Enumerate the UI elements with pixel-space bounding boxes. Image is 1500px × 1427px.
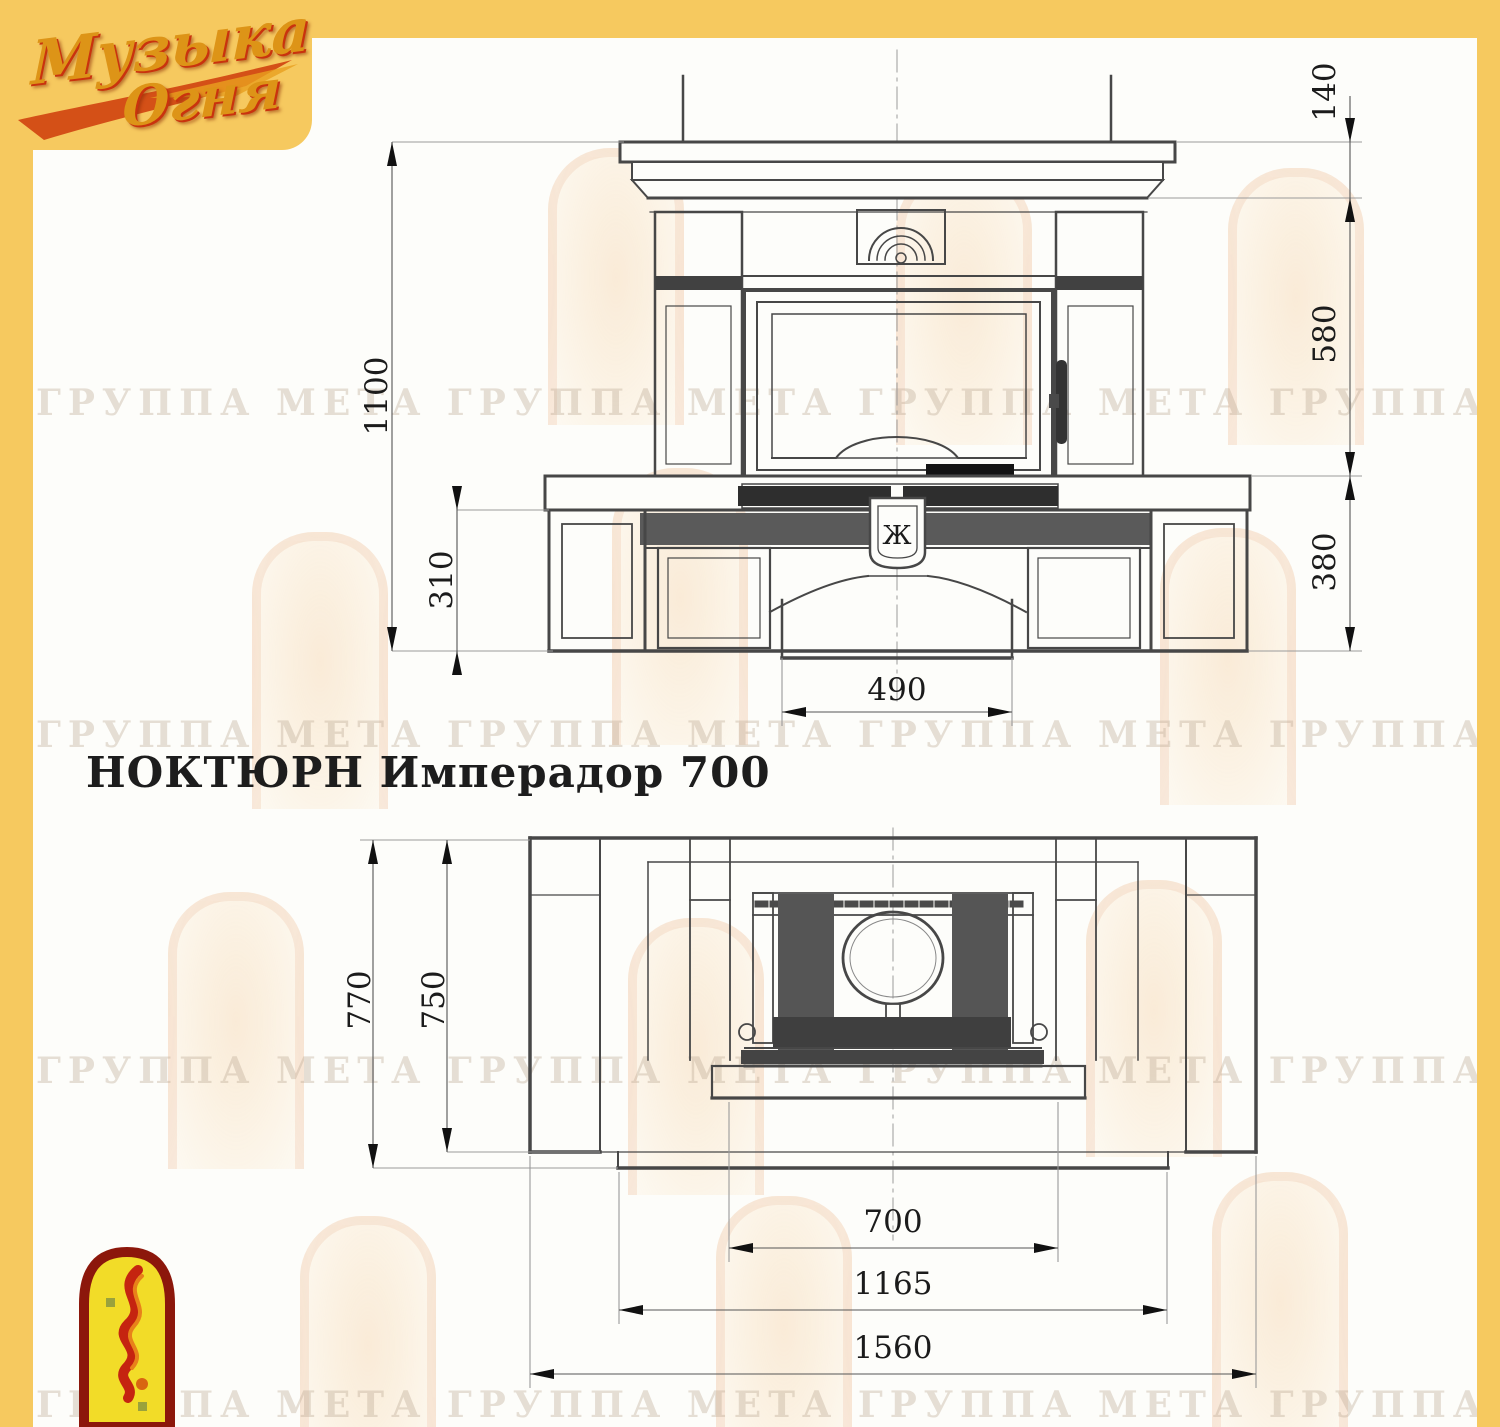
dim-base-label: 380 (1307, 532, 1343, 591)
fireplace-technical-drawing: Ж (0, 0, 1500, 1427)
dim-overall-width-label: 1560 (854, 1330, 933, 1366)
dim-hearth-height-label: 310 (424, 550, 460, 609)
dim-shelf-label: 140 (1307, 62, 1343, 121)
dim-depth-overall-label: 770 (342, 970, 378, 1029)
dim-firebox-label: 580 (1307, 304, 1343, 363)
dim-depth-body-label: 750 (416, 970, 452, 1029)
plan-view (530, 828, 1256, 1240)
dim-overall-height-label: 1100 (359, 357, 395, 436)
fan-ornament-icon (857, 210, 945, 264)
dim-pedestal-width-label: 490 (867, 672, 926, 708)
log-guard-curve (772, 437, 1026, 458)
crest-mark-label: Ж (882, 521, 911, 551)
front-elevation-view: Ж (545, 50, 1250, 706)
dim-insert-width-label: 700 (863, 1204, 922, 1240)
flame-arch-logo-icon (76, 1242, 178, 1427)
model-title: НОКТЮРН Имперадор 700 (86, 748, 771, 797)
dim-body-width-label: 1165 (854, 1266, 933, 1302)
page: ГРУППА МЕТА ГРУППА МЕТА ГРУППА МЕТА ГРУП… (0, 0, 1500, 1427)
